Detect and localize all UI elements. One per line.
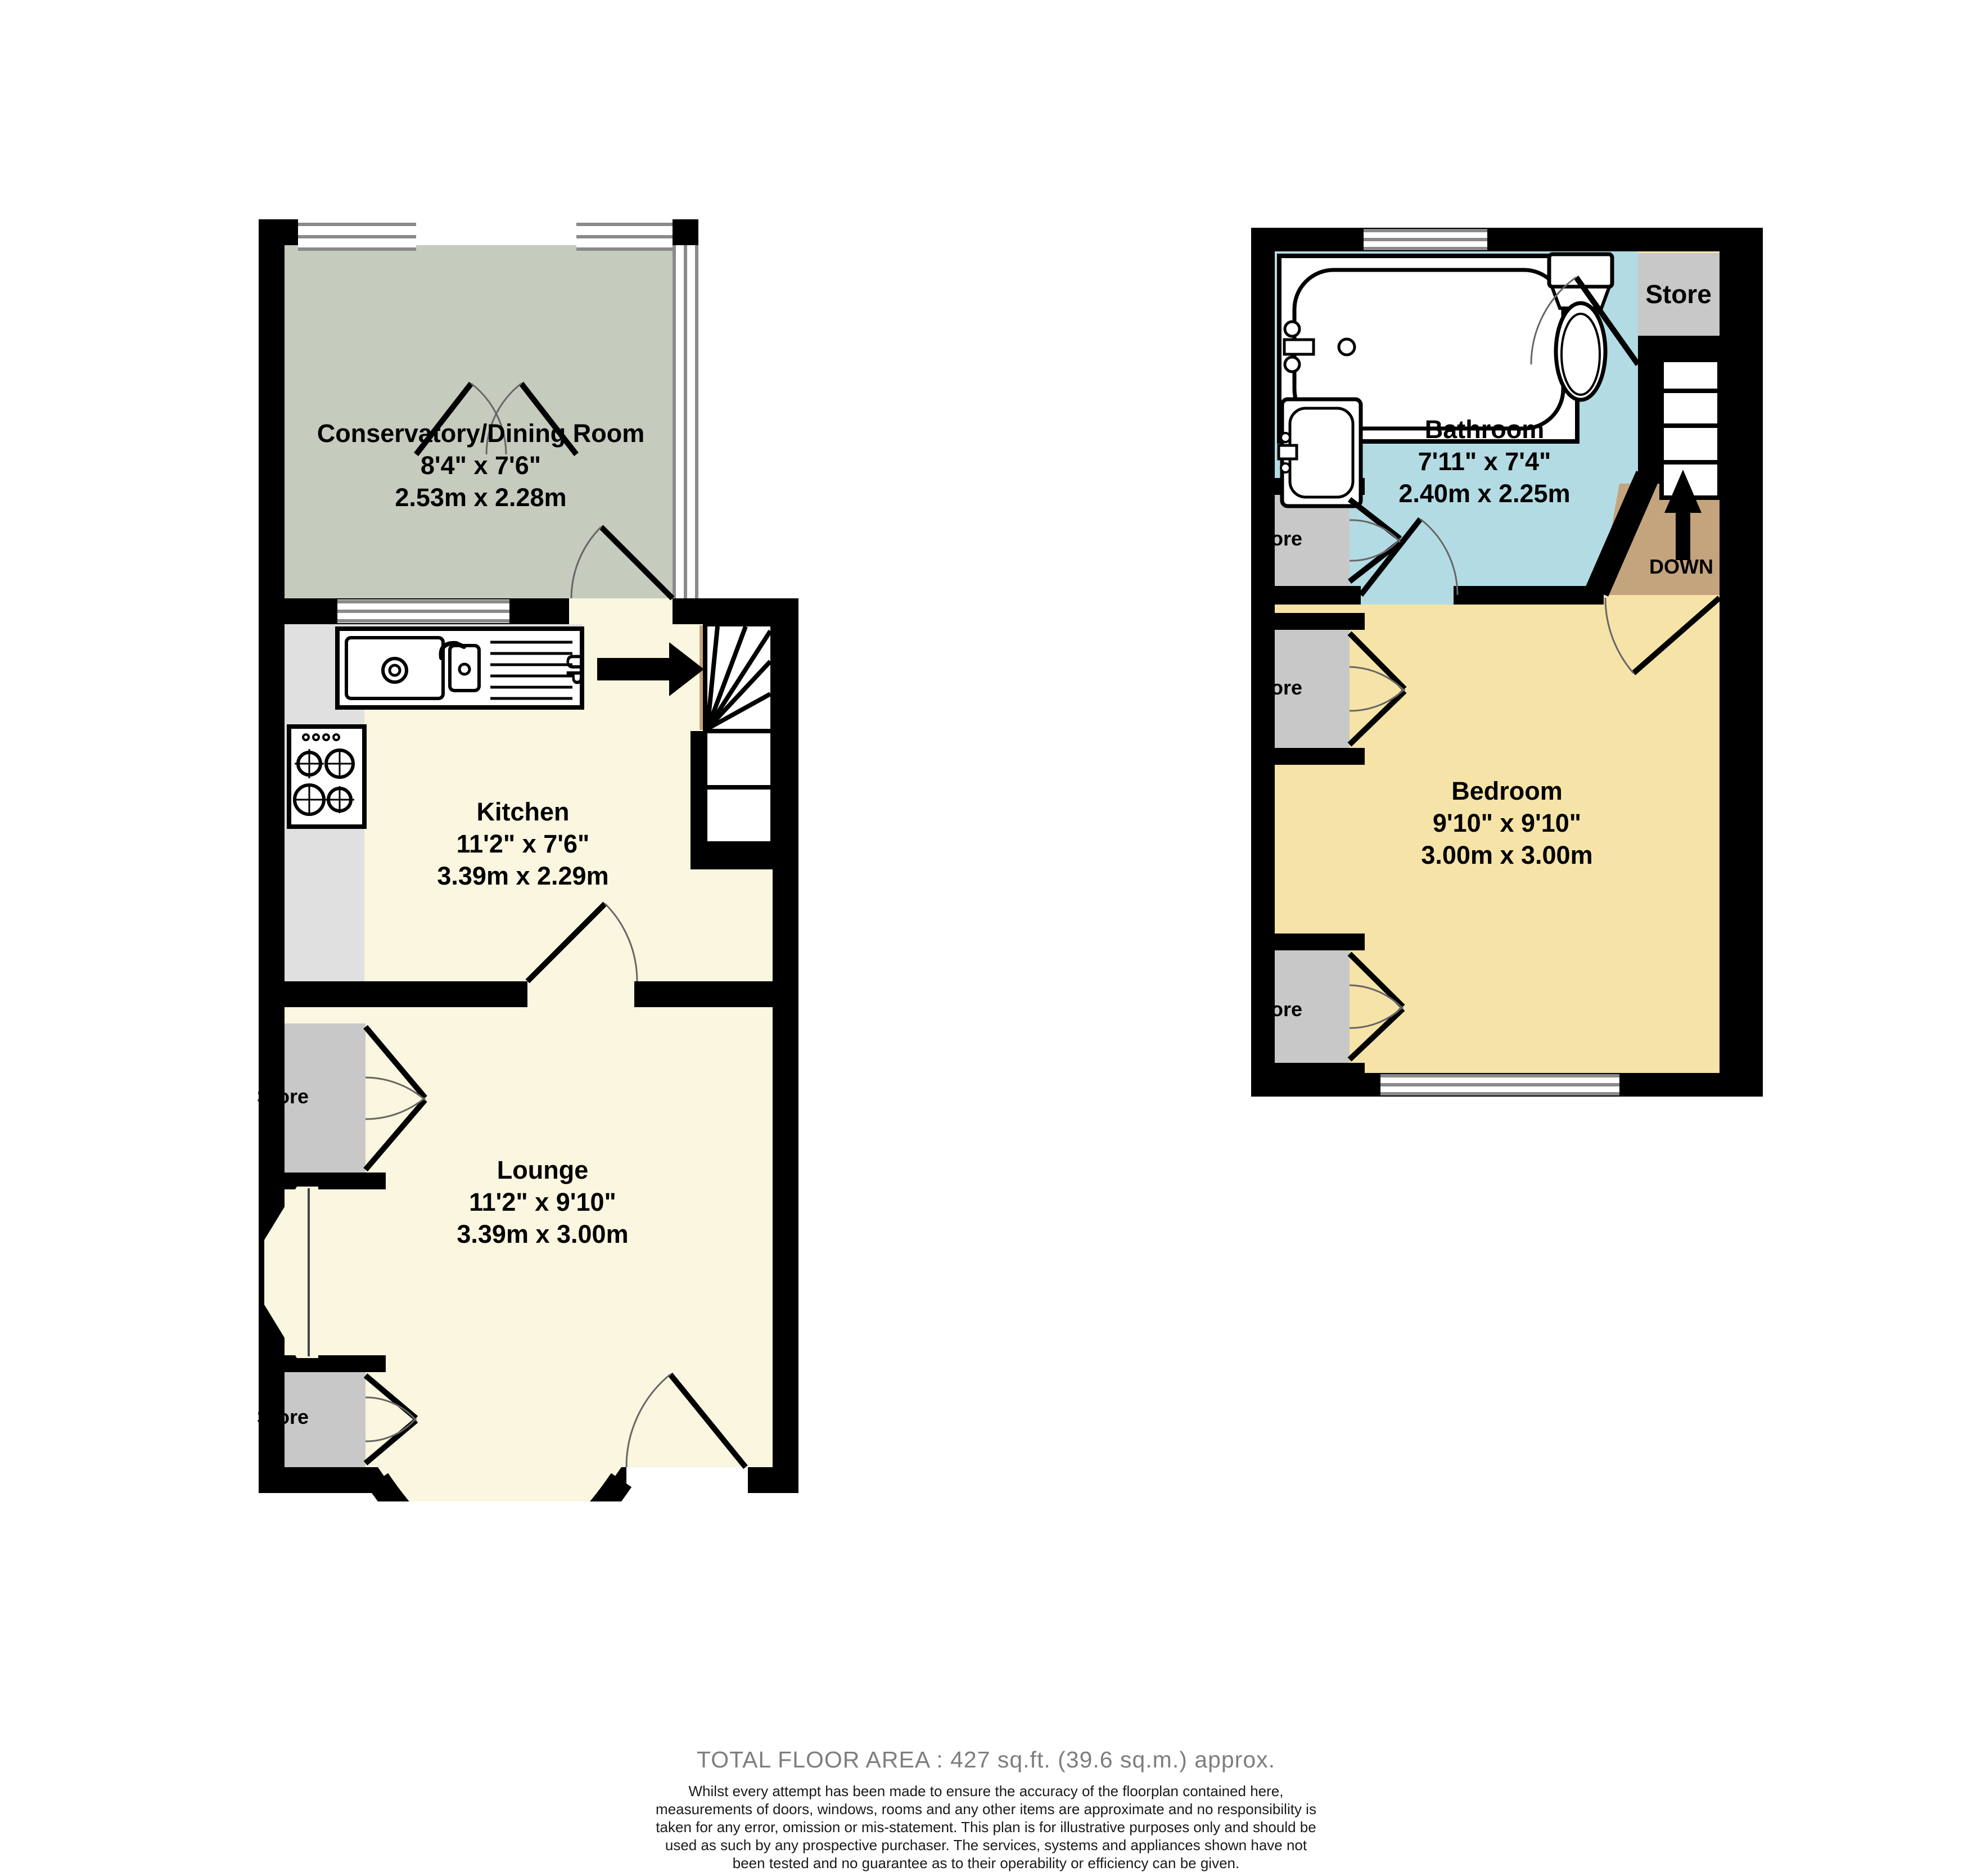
conservatory-label: Conservatory/Dining Room 8'4" x 7'6" 2.5… — [306, 417, 655, 513]
staircase-down — [1662, 360, 1720, 498]
lounge-imperial: 11'2" x 9'10" — [377, 1186, 709, 1218]
bedroom-metric: 3.00m x 3.00m — [1344, 839, 1670, 871]
kitchen-imperial: 11'2" x 7'6" — [365, 828, 680, 860]
bathroom-window — [1364, 229, 1487, 250]
lounge-label: Lounge 11'2" x 9'10" 3.39m x 3.00m — [377, 1154, 709, 1250]
footer: TOTAL FLOOR AREA : 427 sq.ft. (39.6 sq.m… — [0, 1747, 1972, 1876]
bedroom-store2-label: Store — [1229, 998, 1324, 1021]
bedroom-store1-label: Store — [1229, 677, 1324, 699]
kitchen-name: Kitchen — [365, 796, 680, 828]
bathroom-name: Bathroom — [1310, 413, 1659, 445]
bedroom-imperial: 9'10" x 9'10" — [1344, 807, 1670, 839]
bath-store-label: Store — [1229, 527, 1324, 550]
conservatory-name: Conservatory/Dining Room — [306, 417, 655, 449]
kitchen-metric: 3.39m x 2.29m — [365, 860, 680, 892]
first-floor-plan — [1226, 214, 1788, 1113]
bedroom-window — [1380, 1074, 1619, 1095]
cooker-hob-icon — [289, 727, 364, 827]
up-label: UP — [558, 651, 586, 688]
down-label: DOWN — [1619, 556, 1743, 578]
bedroom-label: Bedroom 9'10" x 9'10" 3.00m x 3.00m — [1344, 775, 1670, 871]
disclaimer-text: Whilst every attempt has been made to en… — [647, 1782, 1325, 1872]
bedroom-name: Bedroom — [1344, 775, 1670, 807]
conservatory-imperial: 8'4" x 7'6" — [306, 449, 655, 481]
total-floor-area: TOTAL FLOOR AREA : 427 sq.ft. (39.6 sq.m… — [0, 1747, 1972, 1773]
kitchen-window — [337, 599, 509, 623]
toilet-icon — [1549, 254, 1612, 400]
kitchen-sink-icon — [337, 629, 582, 707]
floorplan-canvas: Conservatory/Dining Room 8'4" x 7'6" 2.5… — [0, 0, 1972, 1876]
store-large-label: Store — [1619, 280, 1738, 308]
bow-window — [378, 1467, 621, 1501]
lounge-metric: 3.39m x 3.00m — [377, 1218, 709, 1250]
metropix-credit: Made with Metropix ©2025 — [0, 1873, 1972, 1876]
kitchen-label: Kitchen 11'2" x 7'6" 3.39m x 2.29m — [365, 796, 680, 892]
bathroom-label: Bathroom 7'11" x 7'4" 2.40m x 2.25m — [1310, 413, 1659, 509]
conservatory-window-top-left — [298, 223, 416, 251]
lounge-store2-label: Store — [235, 1406, 331, 1428]
lounge-name: Lounge — [377, 1154, 709, 1186]
conservatory-window-top-right — [576, 223, 673, 251]
conservatory-metric: 2.53m x 2.28m — [306, 481, 655, 513]
staircase-up — [691, 624, 773, 869]
bathroom-imperial: 7'11" x 7'4" — [1310, 445, 1659, 477]
lounge-store1-label: Store — [235, 1085, 331, 1108]
bathroom-metric: 2.40m x 2.25m — [1310, 477, 1659, 509]
conservatory-window-right-side — [673, 245, 698, 598]
